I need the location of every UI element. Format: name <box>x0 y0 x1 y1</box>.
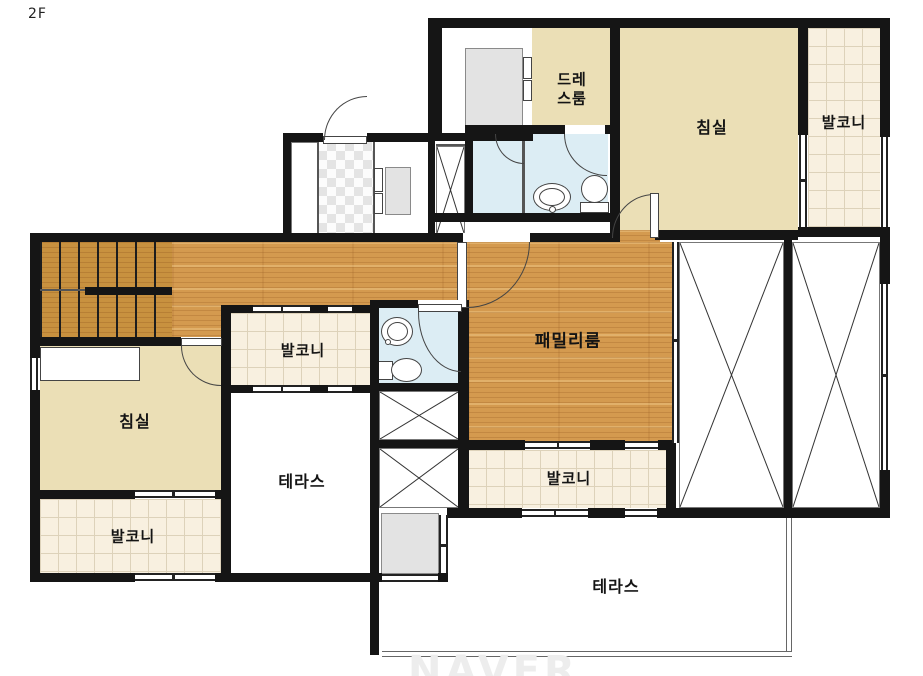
wall <box>880 470 890 518</box>
wall <box>880 18 890 137</box>
door-panel <box>181 338 222 346</box>
wall <box>370 300 379 655</box>
wall <box>367 133 428 142</box>
label-balcony-top-right: 발코니 <box>822 112 866 133</box>
window <box>328 305 352 313</box>
storage-unit-symbol <box>465 48 523 128</box>
label-family-room: 패밀리룸 <box>535 327 602 352</box>
window-divider <box>881 374 888 377</box>
cabinet-symbol <box>385 167 411 215</box>
label-balcony-bottom-mid: 발코니 <box>547 468 591 489</box>
wall <box>657 508 890 518</box>
label-terrace-left: 테라스 <box>278 468 325 492</box>
wall <box>372 440 468 448</box>
wall <box>605 125 620 134</box>
wall <box>655 230 798 240</box>
window-divider <box>281 305 283 313</box>
toilet-bowl-symbol <box>581 175 608 203</box>
window-divider <box>557 441 559 449</box>
window <box>135 490 215 498</box>
wall <box>30 233 463 242</box>
wall <box>30 490 135 499</box>
duct-void-x <box>379 448 459 508</box>
equipment-pad-symbol <box>381 513 439 574</box>
wall <box>798 18 808 135</box>
sliding-door-panel <box>523 80 532 101</box>
closet-symbol <box>40 347 140 381</box>
label-bedroom-top: 침실 <box>696 114 727 138</box>
window <box>881 284 888 470</box>
stair-landing-line <box>40 289 86 291</box>
label-balcony-bottom-left: 발코니 <box>111 526 155 547</box>
open-void-x <box>679 242 784 508</box>
window-divider <box>281 385 283 393</box>
window <box>135 573 215 581</box>
wall <box>880 227 890 284</box>
window-divider <box>799 179 807 182</box>
room-hallway-floor <box>172 305 221 337</box>
wall <box>30 390 40 582</box>
window <box>672 242 679 443</box>
wall <box>465 125 565 134</box>
window-divider <box>439 544 448 547</box>
wall <box>435 213 615 222</box>
window <box>881 137 888 227</box>
wall <box>590 440 625 450</box>
door-panel <box>650 193 659 238</box>
wall <box>784 237 792 518</box>
duct-void-x <box>379 391 459 440</box>
drain-symbol <box>549 206 556 213</box>
stair-half-wall <box>85 287 172 295</box>
wall <box>370 300 418 308</box>
label-bedroom-left: 침실 <box>119 408 150 432</box>
wall <box>283 133 291 240</box>
wall <box>666 443 676 513</box>
terrace-railing <box>786 518 792 655</box>
toilet-tank-symbol <box>580 202 609 213</box>
wall <box>172 337 181 346</box>
window-divider <box>172 490 175 498</box>
window-divider <box>554 509 556 517</box>
sliding-door-panel <box>523 57 532 79</box>
door-arc <box>324 96 367 140</box>
door-panel <box>457 242 467 308</box>
wall <box>465 134 473 222</box>
wall <box>370 383 469 391</box>
wall <box>428 18 442 140</box>
sink-basin-symbol <box>387 322 408 341</box>
label-dress-room-line1: 드레 <box>557 70 587 89</box>
door-opening <box>463 233 530 242</box>
open-void-x <box>792 242 880 508</box>
wall <box>428 140 435 242</box>
wall <box>221 573 382 582</box>
wall <box>798 227 890 237</box>
wall <box>530 233 620 242</box>
sliding-door-panel <box>374 168 383 192</box>
sliding-door-panel <box>374 193 383 214</box>
wall <box>215 490 231 499</box>
label-dress-room-line2: 스룸 <box>557 89 587 108</box>
sink-basin-symbol <box>539 188 565 206</box>
window <box>382 574 438 582</box>
wall <box>221 305 231 582</box>
wall <box>460 440 525 450</box>
wall <box>428 18 890 28</box>
label-balcony-mid: 발코니 <box>281 340 325 361</box>
window-divider <box>172 573 175 581</box>
partition-line <box>317 142 319 238</box>
wall <box>30 573 135 582</box>
window <box>30 358 38 390</box>
floor-label: 2F <box>28 6 47 22</box>
door-opening <box>565 125 605 134</box>
wall <box>588 508 625 518</box>
window <box>328 385 352 393</box>
wall <box>310 305 328 313</box>
wall <box>438 573 448 582</box>
alcove <box>291 142 318 238</box>
wall <box>30 337 172 346</box>
drain-symbol <box>385 339 391 345</box>
door-panel <box>418 304 462 312</box>
window <box>625 509 657 517</box>
wall <box>310 385 328 393</box>
wall <box>221 305 253 313</box>
floor-plan: 드레 스룸 침실 발코니 패밀리룸 발코니 테라스 침실 발코니 발코니 테라스… <box>0 0 923 676</box>
wall <box>221 385 253 393</box>
toilet-bowl-symbol <box>391 358 422 382</box>
label-dress-room: 드레 스룸 <box>557 70 587 108</box>
watermark: NAVER <box>408 648 579 676</box>
wall <box>447 508 522 518</box>
elevator-checker-area <box>318 142 374 238</box>
label-terrace-bottom: 테라스 <box>592 573 639 597</box>
window <box>625 441 658 449</box>
window-divider <box>672 339 679 342</box>
